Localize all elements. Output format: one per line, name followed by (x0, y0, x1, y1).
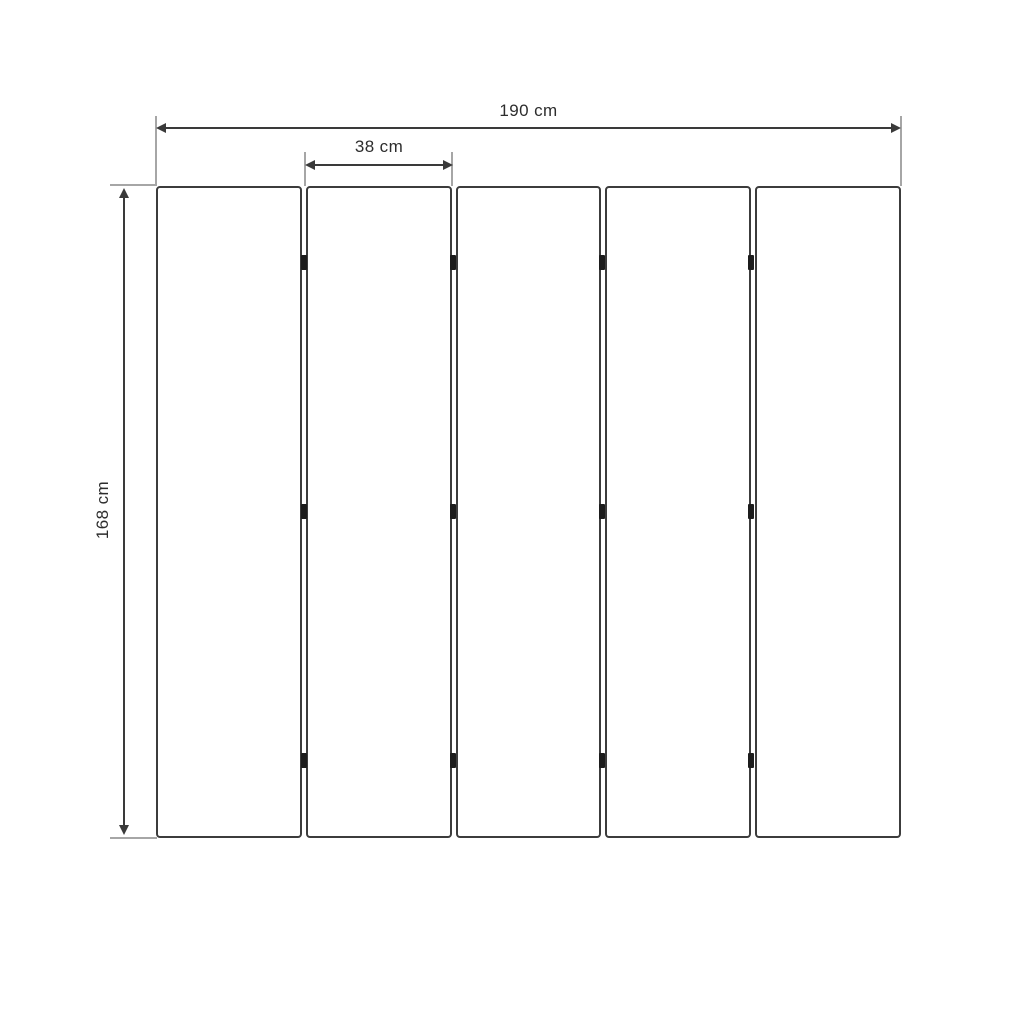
hinge-mark (450, 504, 456, 519)
extension-line-height-top (110, 184, 157, 186)
panels-row (156, 186, 901, 838)
height-label: 168 cm (93, 465, 113, 555)
dimension-line-height (119, 188, 129, 835)
hinge-mark (450, 255, 456, 270)
arrow-right-icon (891, 123, 901, 133)
hinge-mark (599, 753, 605, 768)
hinge-mark (599, 504, 605, 519)
hinge-mark (450, 753, 456, 768)
hinge-mark (599, 255, 605, 270)
dimension-line (123, 196, 125, 827)
panel-1 (156, 186, 302, 838)
dimension-line (313, 164, 445, 166)
hinge-mark (301, 753, 307, 768)
hinge-mark (748, 753, 754, 768)
hinge-mark (301, 504, 307, 519)
hinge-mark (748, 255, 754, 270)
arrow-down-icon (119, 825, 129, 835)
panel-2 (306, 186, 452, 838)
panel-5 (755, 186, 901, 838)
dimension-line-total-width (156, 123, 901, 133)
total-width-label: 190 cm (156, 101, 901, 121)
panel-3 (456, 186, 602, 838)
extension-line-height-bottom (110, 837, 157, 839)
panel-width-label: 38 cm (305, 137, 453, 157)
hinge-mark (748, 504, 754, 519)
dimension-line-panel-width (305, 160, 453, 170)
dimension-line (164, 127, 893, 129)
hinge-mark (301, 255, 307, 270)
panel-4 (605, 186, 751, 838)
panel-dimension-diagram: 190 cm 38 cm 168 cm (0, 0, 1024, 1024)
arrow-right-icon (443, 160, 453, 170)
